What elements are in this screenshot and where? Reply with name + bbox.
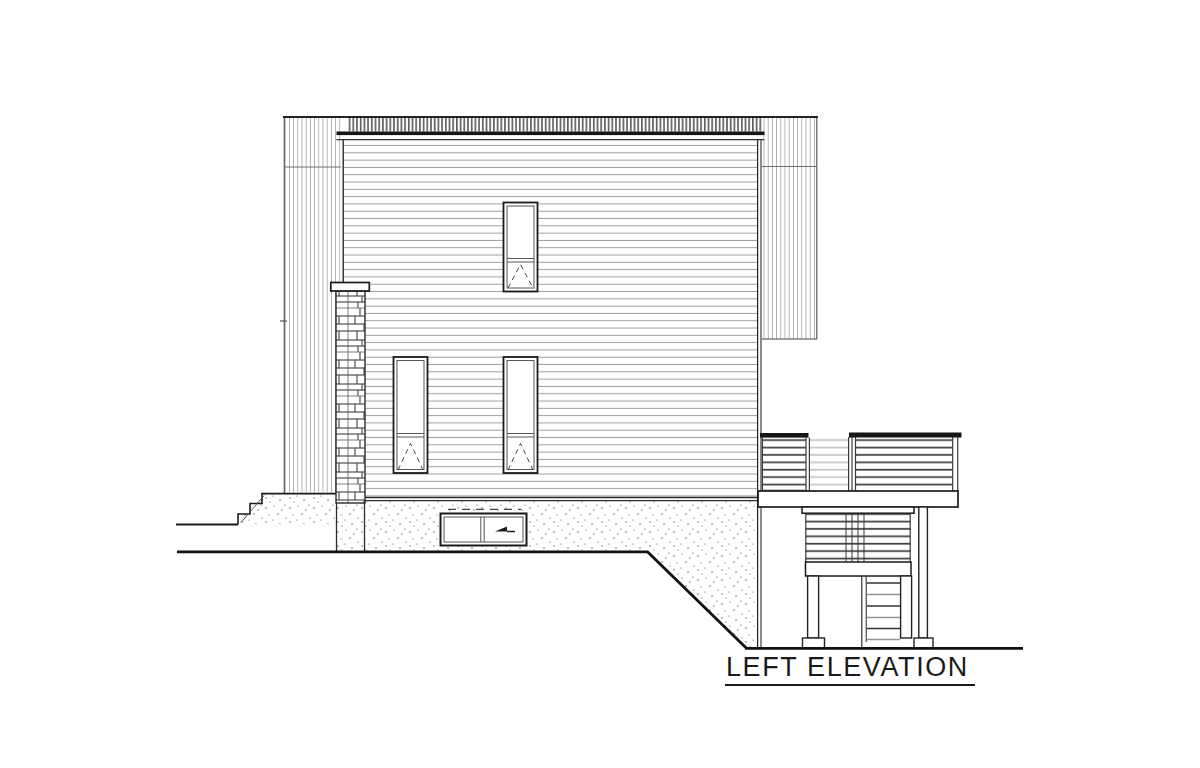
landing-post-right [901,576,912,638]
stair-landing [802,507,914,576]
window-frame [504,203,538,292]
window-frame [394,357,428,473]
left-strip-texture [285,118,341,493]
batten-band [347,118,762,132]
chimney-stone-texture [336,291,365,503]
entry-stoop-and-steps [176,494,336,525]
right-strip-texture [762,118,817,339]
drawing-title: LEFT ELEVATION [725,653,975,686]
deck-support-post-tall [919,507,928,638]
mid-floor-window-left [394,357,428,473]
deck-rail-panel-right [856,438,952,490]
deck-rim-band [758,491,958,507]
upper-floor-window [504,203,538,292]
landing-post-left [808,576,819,638]
stairs [862,576,900,647]
drawing-sheet: LEFT ELEVATION [0,0,1200,768]
left-elevation-drawing [0,0,1200,768]
stair-treads [867,583,900,640]
landing-rail-cap [802,507,914,513]
landing-band [806,562,912,576]
mid-floor-window-right [504,357,538,473]
deck-rail-panel-left [763,438,806,490]
right-siding-strip [762,117,817,339]
deck-rail-cap-right [849,433,962,438]
stoop-stipple [239,495,336,525]
window-frame [504,357,538,473]
basement-window [441,509,527,545]
deck-rail-cap-left [760,433,809,438]
foundation-concrete [336,501,757,648]
parapet [283,117,818,140]
foundation-stipple [336,501,757,648]
deck [758,433,962,508]
parapet-cap [337,132,765,136]
window-frame [441,514,527,546]
deck-rail-opening [810,438,848,490]
chimney-cap [331,283,370,292]
left-siding-strip [280,117,341,493]
